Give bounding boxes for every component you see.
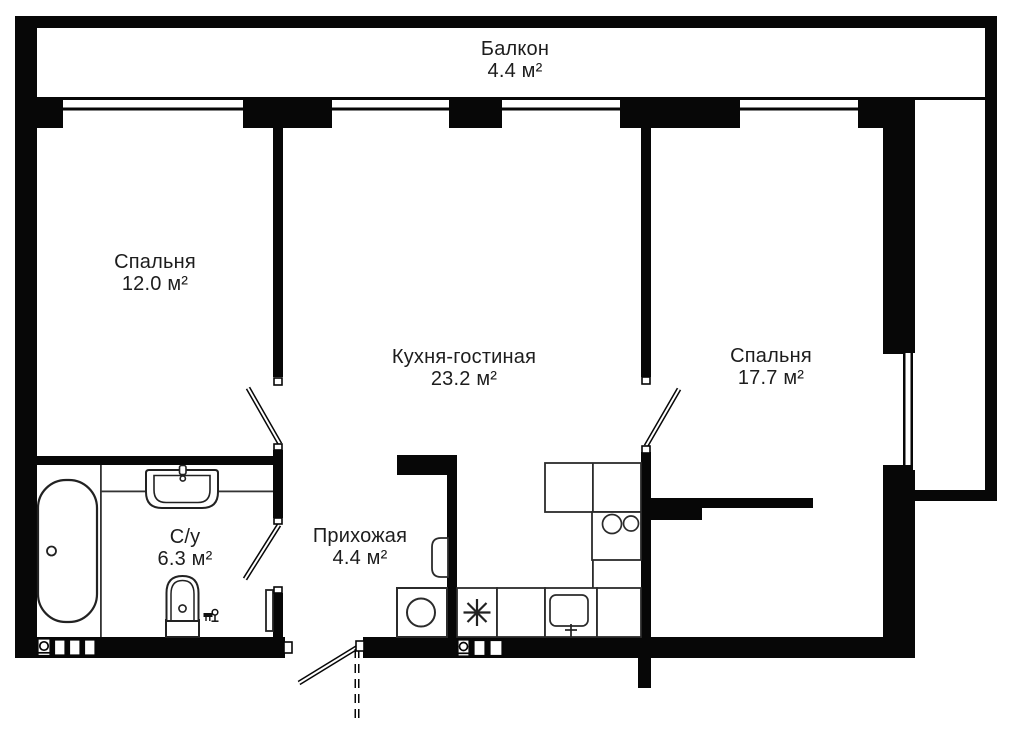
window-line <box>903 353 906 467</box>
stove-burner-icon <box>464 599 491 626</box>
balcony-window-band <box>37 97 985 128</box>
bathroom-fixtures <box>38 465 273 637</box>
room-name: Прихожая <box>313 525 407 547</box>
standpipe-head <box>212 610 218 616</box>
room-area: 17.7 м² <box>730 367 812 389</box>
washbasin-tap-head <box>180 476 185 481</box>
door-jamb <box>274 518 282 524</box>
wall-kitchen-divider <box>641 128 651 377</box>
room-area: 4.4 м² <box>481 60 549 82</box>
bedroom2-window <box>883 351 913 471</box>
room-label-bedroom-2: Спальня 17.7 м² <box>730 345 812 389</box>
room-name: Спальня <box>114 251 196 273</box>
room-area: 12.0 м² <box>114 273 196 295</box>
room-area: 6.3 м² <box>158 548 213 570</box>
door-swing-icon-bedroom1 <box>248 388 280 444</box>
window-line-outer <box>37 97 985 100</box>
wall-bathroom-right-lower <box>273 593 283 637</box>
water-heater-icon <box>432 538 448 577</box>
kitchen-counter <box>592 512 641 560</box>
door-jamb <box>642 446 650 453</box>
door-jamb <box>284 642 292 653</box>
door-swing-icon-bedroom2 <box>646 389 679 446</box>
room-name: Спальня <box>730 345 812 367</box>
window-pier <box>620 99 740 128</box>
window-pier <box>243 99 332 128</box>
room-label-balcony: Балкон 4.4 м² <box>481 38 549 82</box>
washing-machine-icon <box>397 588 447 637</box>
wall-bedroom2-bottom <box>702 498 813 508</box>
kitchen-fixtures <box>397 463 641 637</box>
ventilation-shaft-icon <box>54 640 66 656</box>
floor-plan: Балкон 4.4 м² Спальня 12.0 м² Кухня-гост… <box>0 0 1013 736</box>
room-area: 23.2 м² <box>392 368 536 390</box>
room-name: Балкон <box>481 38 549 60</box>
ventilation-shaft-icon <box>69 640 81 656</box>
ventilation-shaft-icon <box>490 640 503 656</box>
window-line <box>911 353 914 467</box>
washer-tap-icon <box>204 610 219 622</box>
door-swing-icon-bathroom <box>245 525 279 579</box>
door-jamb <box>274 444 282 450</box>
ventilation-shaft-icon <box>84 640 96 656</box>
wall-top <box>15 16 997 28</box>
wall-bathroom-top <box>37 456 273 465</box>
window-sill <box>883 351 903 354</box>
room-name: С/у <box>158 526 213 548</box>
room-label-hallway: Прихожая 4.4 м² <box>313 525 407 569</box>
wall-right-step <box>913 490 997 501</box>
entry-door-icon <box>299 645 361 722</box>
door-leaf-core <box>245 525 279 579</box>
window-pier <box>858 99 915 128</box>
room-label-bedroom-1: Спальня 12.0 м² <box>114 251 196 295</box>
room-label-kitchen-living: Кухня-гостиная 23.2 м² <box>392 346 536 390</box>
room-name: Кухня-гостиная <box>392 346 536 368</box>
door-jamb <box>642 377 650 384</box>
room-area: 4.4 м² <box>313 547 407 569</box>
washbasin-tap <box>180 466 187 475</box>
wall-kitchen-divider-lower <box>641 452 651 658</box>
window-pier <box>449 99 502 128</box>
wall-bathroom-right-upper <box>273 450 283 518</box>
kitchen-counter <box>597 588 641 637</box>
window-pier <box>37 99 63 128</box>
door-leaf-core <box>299 645 361 683</box>
towel-rail-icon <box>266 590 273 631</box>
wall-left <box>15 16 37 658</box>
wall-hallway-niche-top <box>397 455 457 475</box>
wall-bottom-right <box>363 637 915 658</box>
ventilation-shaft-icon <box>474 640 486 656</box>
wall-bedroom2-right-lower <box>883 470 915 658</box>
toilet-tank <box>166 620 199 637</box>
wall-stub-below <box>638 658 651 688</box>
door-leaf-core <box>646 389 679 446</box>
door-leaf-core <box>248 388 280 444</box>
wall-bedroom1-divider <box>273 128 283 377</box>
door-jamb <box>274 587 282 593</box>
wall-bedroom2-right-upper <box>883 128 915 353</box>
door-jamb <box>274 378 282 385</box>
window-sill <box>883 465 913 471</box>
tap-body <box>204 614 212 617</box>
kitchen-counter <box>497 588 545 637</box>
wall-right <box>985 16 997 501</box>
wall-bedroom2-bottom-thick <box>651 498 702 520</box>
room-label-bathroom: С/у 6.3 м² <box>158 526 213 570</box>
door-jamb <box>356 641 364 651</box>
